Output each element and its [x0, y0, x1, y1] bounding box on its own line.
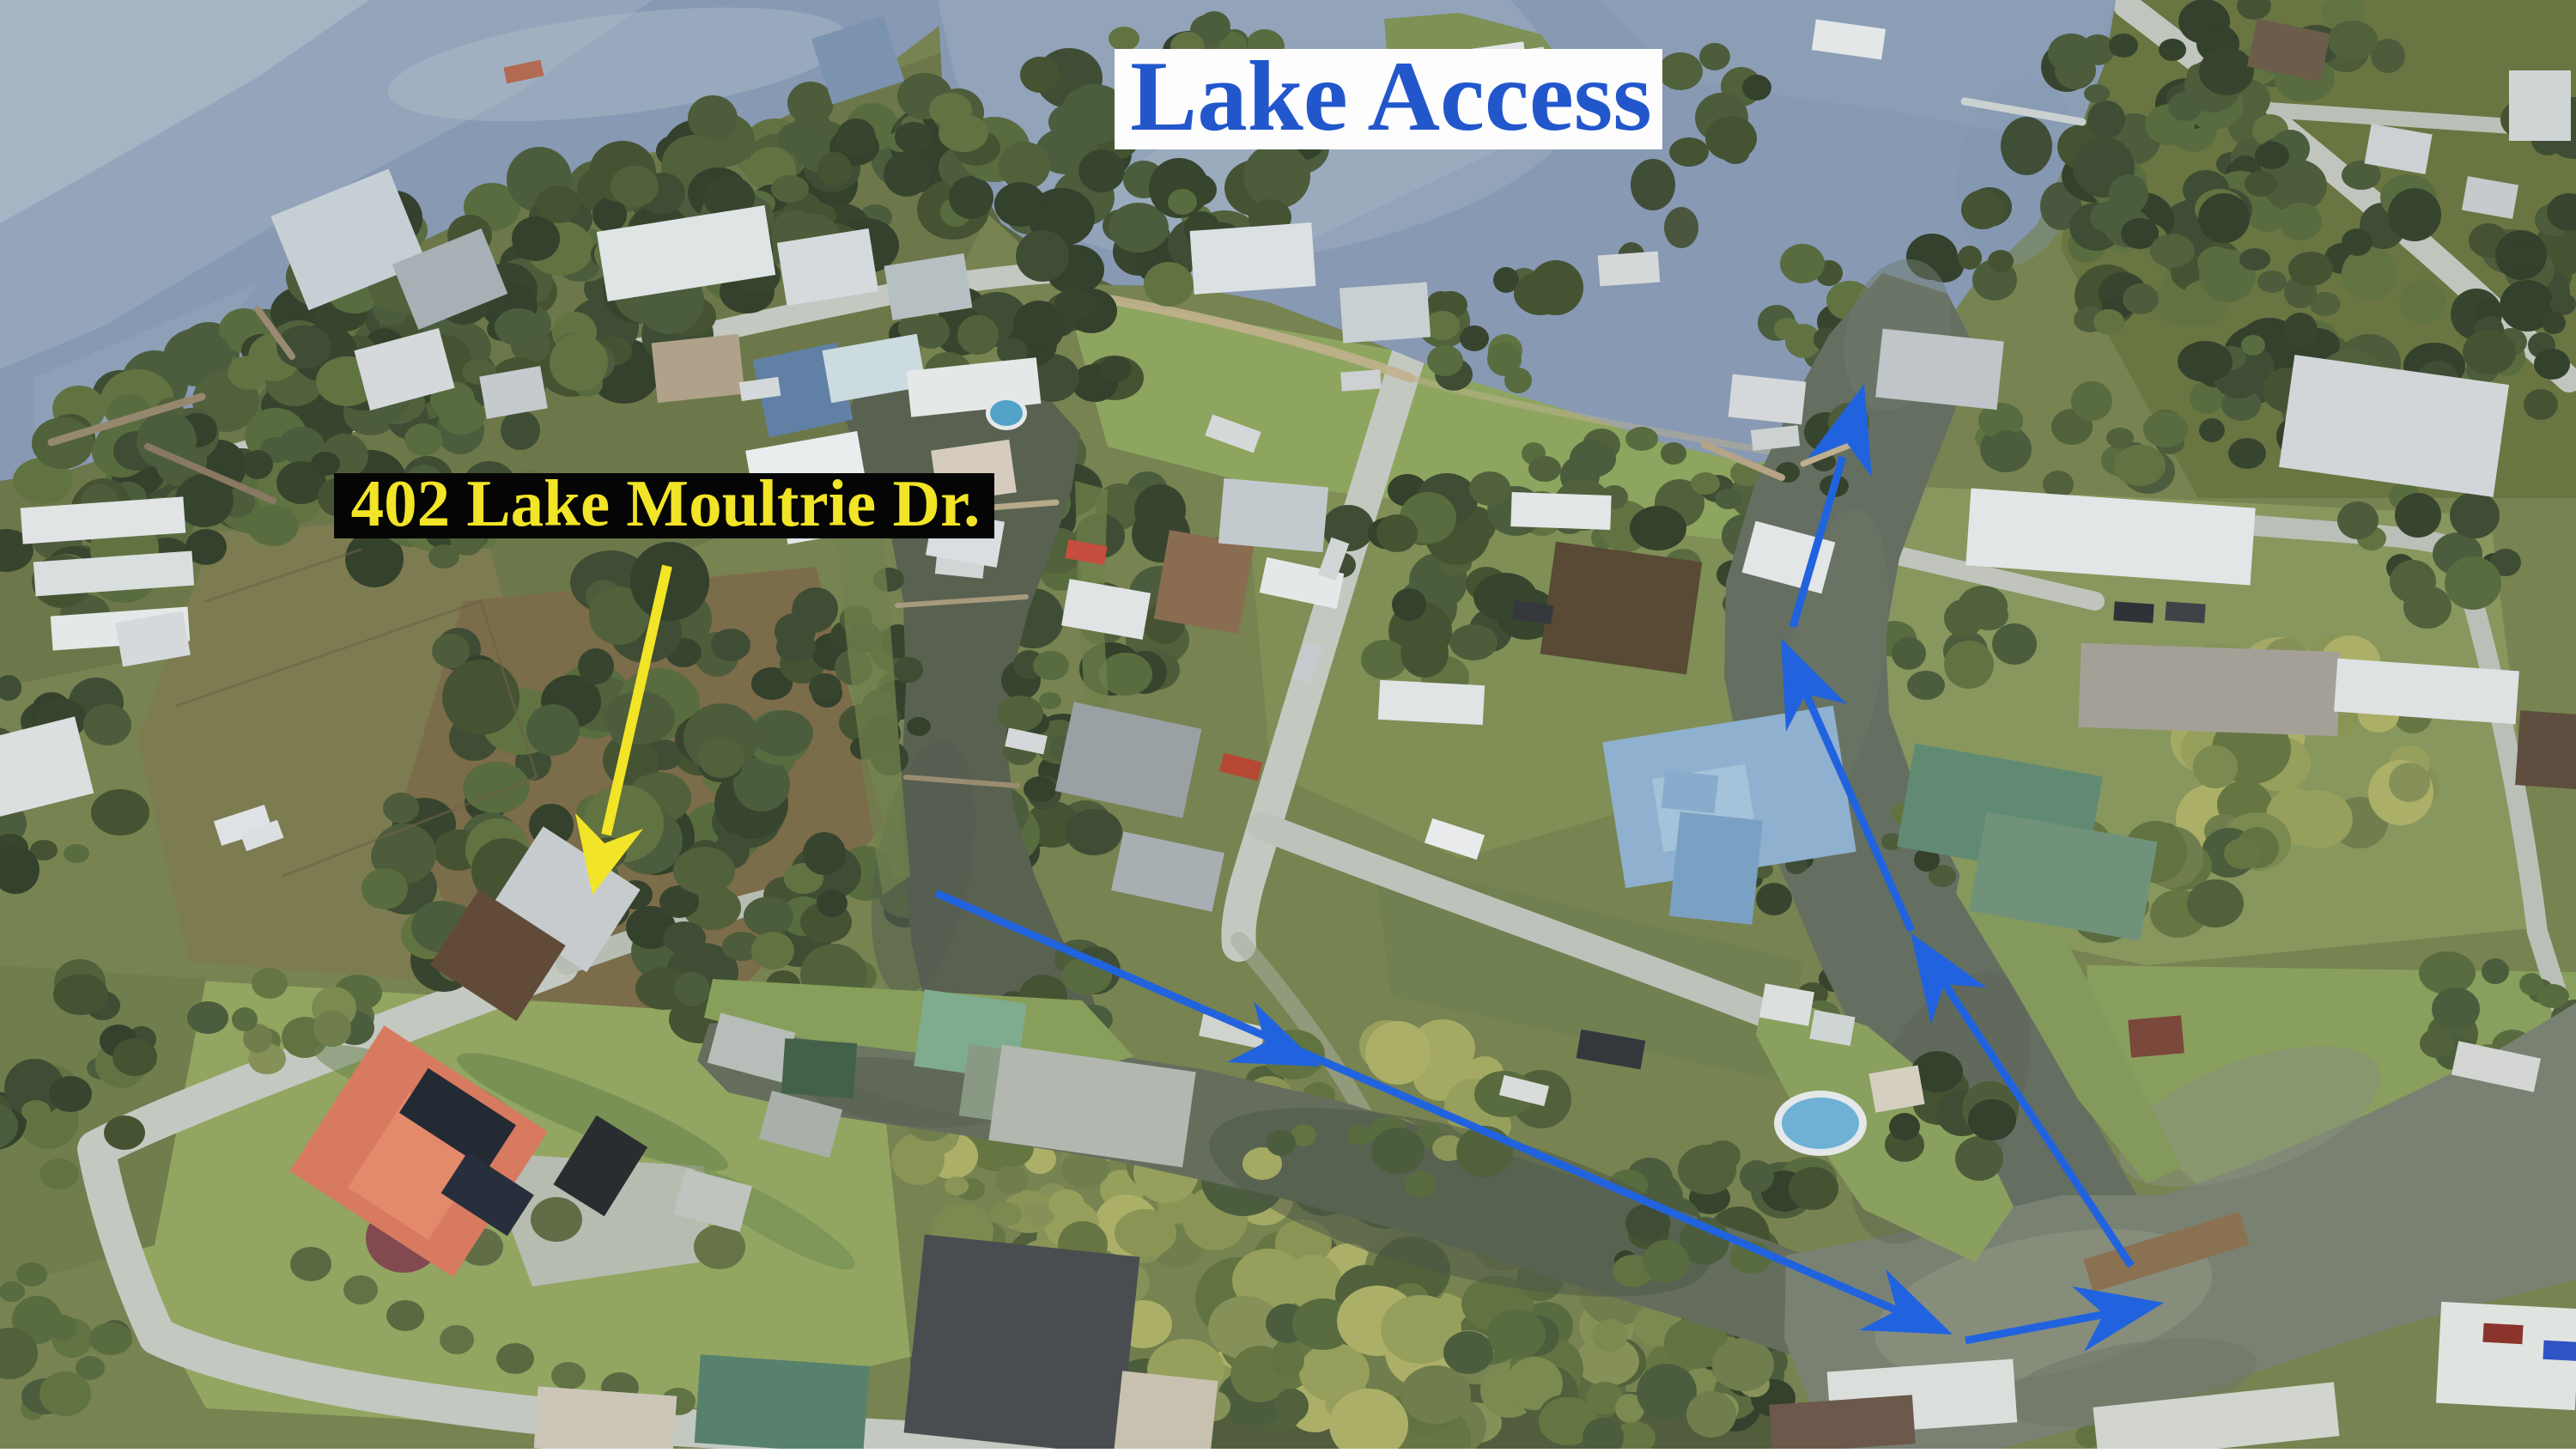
svg-text:Lake Access: Lake Access [1130, 41, 1652, 152]
svg-text:402 Lake Moultrie Dr.: 402 Lake Moultrie Dr. [351, 466, 981, 540]
